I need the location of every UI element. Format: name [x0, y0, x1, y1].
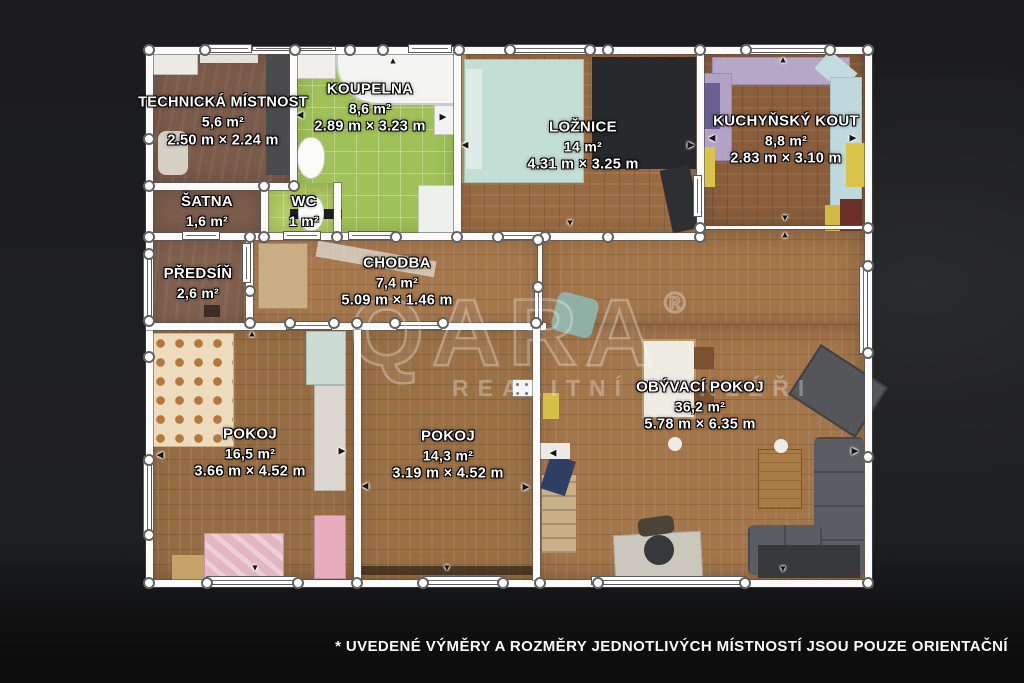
- wall-node: [244, 317, 256, 329]
- room-label-satna: ŠATNA 1,6 m²: [181, 192, 233, 230]
- pan-down-icon[interactable]: ▼: [781, 214, 790, 223]
- washing-machine: [152, 53, 198, 75]
- floor-item: [668, 437, 682, 451]
- room-area: 1,6 m²: [181, 212, 233, 230]
- pan-up-icon[interactable]: ▲: [248, 330, 257, 339]
- wall-node: [862, 577, 874, 589]
- room-dims: 5.78 m × 6.35 m: [636, 416, 764, 435]
- wall-node: [437, 317, 449, 329]
- dining-chair: [694, 347, 714, 369]
- wall-node: [201, 577, 213, 589]
- wall-node: [289, 44, 301, 56]
- door-marker: [182, 231, 220, 240]
- wall-node: [824, 44, 836, 56]
- room-area: 36,2 m²: [636, 397, 764, 415]
- wall: [454, 47, 461, 240]
- wall-node: [862, 44, 874, 56]
- wall-node: [328, 317, 340, 329]
- kids-desk: [306, 331, 346, 385]
- room-dims: 2.83 m × 3.10 m: [713, 150, 859, 169]
- wall-node: [292, 577, 304, 589]
- wall-node: [244, 285, 256, 297]
- floor-item: [774, 439, 788, 453]
- shower-tray: [418, 185, 458, 235]
- window-marker: [859, 266, 868, 354]
- wall-cabinet: [758, 449, 802, 509]
- wall-node: [390, 231, 402, 243]
- wall-node: [284, 317, 296, 329]
- wall-node: [199, 44, 211, 56]
- disclaimer-text: * UVEDENÉ VÝMĚRY A ROZMĚRY JEDNOTLIVÝCH …: [335, 638, 1008, 655]
- wall-node: [244, 231, 256, 243]
- wall-node: [417, 577, 429, 589]
- wall-node: [694, 222, 706, 234]
- window-marker: [744, 44, 830, 53]
- pan-left-icon[interactable]: ◀: [462, 141, 469, 150]
- window-marker: [206, 576, 298, 585]
- wall-node: [453, 44, 465, 56]
- wall-node: [740, 44, 752, 56]
- wall-node: [143, 529, 155, 541]
- room-name: POKOJ: [194, 424, 305, 444]
- wall-node: [143, 180, 155, 192]
- wall-node: [862, 347, 874, 359]
- room-area: 16,5 m²: [194, 444, 305, 462]
- wall-node: [258, 231, 270, 243]
- room-area: 7,4 m²: [341, 273, 452, 291]
- wall-node: [143, 351, 155, 363]
- wall-node: [389, 317, 401, 329]
- pan-right-icon[interactable]: ▶: [688, 141, 695, 150]
- wall-node: [739, 577, 751, 589]
- doormat: [204, 305, 220, 317]
- room-name: LOŽNICE: [527, 117, 638, 137]
- room-dims: 3.19 m × 4.52 m: [392, 465, 503, 484]
- room-name: OBÝVACÍ POKOJ: [636, 377, 764, 397]
- wall-node: [584, 44, 596, 56]
- room-area: 1 m²: [289, 212, 319, 230]
- wall-node: [602, 231, 614, 243]
- wall-node: [288, 180, 300, 192]
- window-marker: [423, 576, 503, 585]
- room-name: KOUPELNA: [314, 79, 425, 99]
- pan-right-icon[interactable]: ▶: [523, 483, 530, 492]
- pan-up-icon[interactable]: ▲: [779, 56, 788, 65]
- hall-wardrobe: [258, 243, 308, 309]
- pan-left-icon[interactable]: ◀: [157, 451, 164, 460]
- room-label-chodba: CHODBA 7,4 m² 5.09 m × 1.46 m: [341, 253, 452, 310]
- pan-left-icon[interactable]: ◀: [362, 482, 369, 491]
- pink-bed: [204, 533, 284, 582]
- wall-node: [532, 281, 544, 293]
- room-dims: 2.50 m × 2.24 m: [138, 131, 308, 150]
- pan-left-icon[interactable]: ◀: [550, 449, 557, 458]
- wall-node: [694, 44, 706, 56]
- room-name: KUCHYŇSKÝ KOUT: [713, 111, 859, 131]
- room-area: 5,6 m²: [138, 113, 308, 131]
- wall-node: [143, 44, 155, 56]
- wall-node: [351, 577, 363, 589]
- window-marker: [591, 576, 746, 585]
- pillows: [466, 69, 482, 169]
- pan-down-icon[interactable]: ▼: [251, 564, 260, 573]
- door-marker: [693, 175, 702, 217]
- door-marker: [242, 243, 251, 283]
- office-chair: [644, 535, 674, 565]
- window-marker: [143, 255, 152, 321]
- wall-node: [143, 454, 155, 466]
- window-marker: [408, 44, 452, 53]
- door-marker: [283, 231, 321, 240]
- wall-node: [258, 180, 270, 192]
- room-label-obyvaci-pokoj: OBÝVACÍ POKOJ 36,2 m² 5.78 m × 6.35 m: [636, 377, 764, 434]
- room-label-pokoj-1: POKOJ 16,5 m² 3.66 m × 4.52 m: [194, 424, 305, 481]
- room-dims: 3.66 m × 4.52 m: [194, 463, 305, 482]
- wall-node: [592, 577, 604, 589]
- window-marker: [508, 44, 590, 53]
- wall: [146, 233, 704, 240]
- pan-down-icon[interactable]: ▼: [779, 565, 788, 574]
- room-dims: 4.31 m × 3.25 m: [527, 156, 638, 175]
- wall-node: [143, 248, 155, 260]
- sink-cabinet: [296, 51, 336, 79]
- pan-down-icon[interactable]: ▼: [443, 564, 452, 573]
- room-name: POKOJ: [392, 426, 503, 446]
- screenshot-root: TECHNICKÁ MÍSTNOST 5,6 m² 2.50 m × 2.24 …: [0, 0, 1024, 683]
- registered-mark-icon: ®: [664, 287, 694, 320]
- wall-node: [351, 317, 363, 329]
- room-area: 8,6 m²: [314, 99, 425, 117]
- white-wardrobe: [314, 385, 346, 491]
- pan-right-icon[interactable]: ▶: [440, 113, 447, 122]
- wall-node: [530, 317, 542, 329]
- wall-node: [534, 577, 546, 589]
- tv-stand: [758, 545, 860, 578]
- pan-right-icon[interactable]: ▶: [339, 447, 346, 456]
- wall-node: [862, 451, 874, 463]
- wall-node: [143, 315, 155, 327]
- wall-node: [143, 577, 155, 589]
- room-label-wc: WC 1 m²: [289, 192, 319, 230]
- room-area: 8,8 m²: [713, 131, 859, 149]
- room-label-pokoj-2: POKOJ 14,3 m² 3.19 m × 4.52 m: [392, 426, 503, 483]
- wall-node: [451, 231, 463, 243]
- room-label-loznice: LOŽNICE 14 m² 4.31 m × 3.25 m: [527, 117, 638, 174]
- wall-node: [504, 44, 516, 56]
- room-label-technicka-mistnost: TECHNICKÁ MÍSTNOST 5,6 m² 2.50 m × 2.24 …: [138, 94, 308, 151]
- wall-node: [344, 44, 356, 56]
- room-dims: 5.09 m × 1.46 m: [341, 292, 452, 311]
- room-label-koupelna: KOUPELNA 8,6 m² 2.89 m × 3.23 m: [314, 79, 425, 136]
- room-dims: 2.89 m × 3.23 m: [314, 118, 425, 137]
- room-name: TECHNICKÁ MÍSTNOST: [138, 94, 308, 113]
- room-name: ŠATNA: [181, 192, 233, 212]
- room-name: PŘEDSÍŇ: [164, 264, 233, 284]
- pink-shelf: [314, 515, 346, 579]
- pan-right-icon[interactable]: ▶: [852, 447, 859, 456]
- room-area: 14,3 m²: [392, 446, 503, 464]
- pan-up-icon[interactable]: ▲: [389, 57, 398, 66]
- room-area: 14 m²: [527, 137, 638, 155]
- room-label-kuchynsky-kout: KUCHYŇSKÝ KOUT 8,8 m² 2.83 m × 3.10 m: [713, 111, 859, 168]
- wall-node: [497, 577, 509, 589]
- wall-node: [143, 231, 155, 243]
- room-area: 2,6 m²: [164, 284, 233, 302]
- room-name: CHODBA: [341, 253, 452, 273]
- wall-node: [862, 260, 874, 272]
- room-name: WC: [289, 192, 319, 212]
- pan-down-icon[interactable]: ▼: [566, 219, 575, 228]
- pan-up-icon[interactable]: ▲: [781, 231, 790, 240]
- wall: [146, 183, 297, 190]
- room-label-predsin: PŘEDSÍŇ 2,6 m²: [164, 264, 233, 302]
- wall-node: [532, 234, 544, 246]
- window-marker: [143, 461, 152, 536]
- bed-footboard: [172, 555, 204, 580]
- wall-node: [377, 44, 389, 56]
- wall-node: [602, 44, 614, 56]
- wall-node: [331, 231, 343, 243]
- wall-node: [492, 231, 504, 243]
- door-marker: [348, 231, 396, 240]
- wall-node: [862, 222, 874, 234]
